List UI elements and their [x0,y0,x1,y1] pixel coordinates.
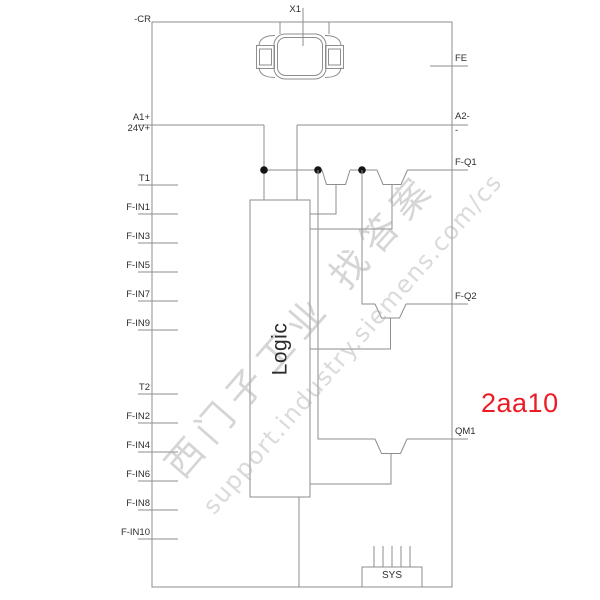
pin-sublabel-a2-minus: - [455,126,458,136]
x1-body-inner [278,38,323,76]
fq2-feed-line [362,170,375,304]
pin-label-a2: A2- [455,112,470,122]
schematic-canvas [0,0,600,600]
pin-label-f-in4: F-IN4 [96,441,150,451]
sys-connector-pins [374,546,410,567]
pin-label-f-in9: F-IN9 [96,319,150,329]
transistor-qm1-gate [310,454,391,485]
x1-connector-icon [257,8,344,79]
red-annotation-text: 2aa10 [481,388,559,419]
x1-left-clip-inner [260,49,272,65]
junction-dot-1 [260,166,268,174]
x1-right-clip-inner [329,49,341,65]
pin-label-qm1: QM1 [455,427,476,437]
logic-box [250,200,310,497]
transistor-s1-gate [310,185,336,215]
transistor-fq1-gate [310,185,392,230]
pin-label-f-in10: F-IN10 [96,528,150,538]
transistor-fq2 [375,304,468,318]
pin-label-f-in8: F-IN8 [96,499,150,509]
pin-label-t2: T2 [96,383,150,393]
pin-label-f-in1: F-IN1 [96,203,150,213]
power-terminal-label: A1+ 24V+ [96,113,150,134]
pin-label-f-in6: F-IN6 [96,470,150,480]
pin-label-fe: FE [455,54,467,64]
transistor-qm1 [375,439,468,454]
transistor-fq2-gate [310,318,391,349]
x1-stub-lines [280,22,329,34]
pin-label-t1: T1 [96,174,150,184]
x1-right-flanges [325,36,341,78]
pin-label-f-in2: F-IN2 [96,412,150,422]
x1-body-outer [274,34,326,79]
a1-plus-label: A1+ [96,113,150,124]
a2-minus-rail [297,125,468,200]
pin-label-f-in3: F-IN3 [96,232,150,242]
pin-label-f-q1: F-Q1 [455,158,477,168]
a1-plus-rail [138,125,264,200]
device-designation-label: -CR [118,15,151,25]
x1-left-flanges [259,36,275,78]
pin-label-f-in5: F-IN5 [96,261,150,271]
sys-connector-label: SYS [362,571,422,581]
transistor-fq1 [377,170,408,185]
pin-label-f-in7: F-IN7 [96,290,150,300]
v24-plus-label: 24V+ [96,124,150,135]
x1-connector-label: X1 [281,5,301,15]
transistor-s1 [322,170,350,185]
pin-label-f-q2: F-Q2 [455,292,477,302]
diagram-page: { "labels": { "device_designation": "-CR… [0,0,600,600]
